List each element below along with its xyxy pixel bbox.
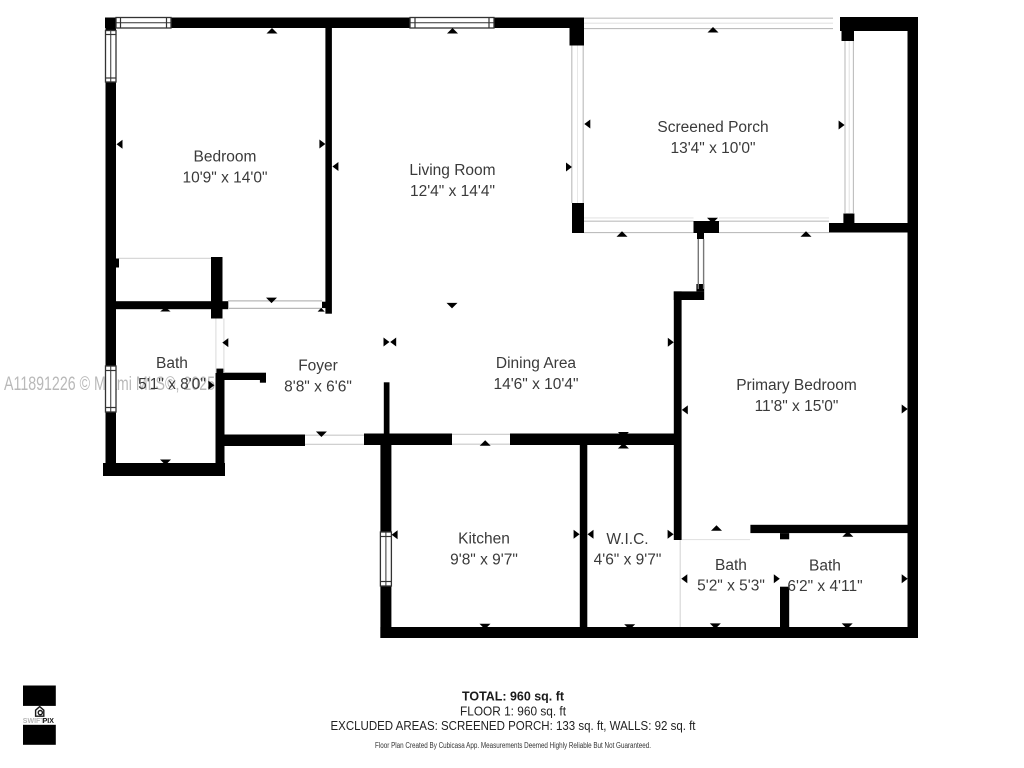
svg-text:Bedroom: Bedroom — [194, 149, 257, 166]
svg-text:Foyer: Foyer — [298, 358, 338, 375]
svg-text:14'6" x 10'4": 14'6" x 10'4" — [493, 376, 578, 393]
svg-text:Kitchen: Kitchen — [458, 531, 510, 548]
svg-text:11'8" x 15'0": 11'8" x 15'0" — [755, 398, 839, 415]
svg-text:4'6" x 9'7": 4'6" x 9'7" — [594, 552, 662, 569]
svg-text:6'2" x 4'11": 6'2" x 4'11" — [787, 578, 862, 595]
svg-text:TOTAL: 960 sq. ft: TOTAL: 960 sq. ft — [462, 689, 565, 704]
svg-text:Dining Area: Dining Area — [496, 355, 577, 372]
svg-text:W.I.C.: W.I.C. — [606, 531, 648, 548]
svg-text:12'4" x 14'4": 12'4" x 14'4" — [410, 183, 495, 200]
svg-text:8'8" x 6'6": 8'8" x 6'6" — [284, 379, 352, 396]
svg-text:Bath: Bath — [715, 557, 747, 574]
svg-text:5'1" x 8'0": 5'1" x 8'0" — [138, 376, 206, 393]
svg-text:PIX: PIX — [43, 718, 55, 725]
svg-text:Living Room: Living Room — [409, 162, 495, 179]
svg-text:EXCLUDED AREAS: SCREENED PORCH: EXCLUDED AREAS: SCREENED PORCH: 133 sq. … — [331, 718, 696, 733]
svg-text:13'4" x 10'0": 13'4" x 10'0" — [670, 140, 755, 157]
svg-text:Primary Bedroom: Primary Bedroom — [736, 377, 857, 394]
svg-text:5'2" x 5'3": 5'2" x 5'3" — [697, 578, 765, 595]
svg-text:Screened Porch: Screened Porch — [657, 119, 768, 136]
svg-text:Bath: Bath — [156, 355, 188, 372]
svg-text:9'8" x 9'7": 9'8" x 9'7" — [450, 552, 518, 569]
svg-text:FLOOR 1: 960 sq. ft: FLOOR 1: 960 sq. ft — [460, 704, 566, 719]
svg-text:10'9" x 14'0": 10'9" x 14'0" — [182, 170, 267, 187]
svg-text:Bath: Bath — [809, 558, 841, 575]
svg-text:Floor Plan Created By Cubicasa: Floor Plan Created By Cubicasa App. Meas… — [375, 741, 651, 750]
